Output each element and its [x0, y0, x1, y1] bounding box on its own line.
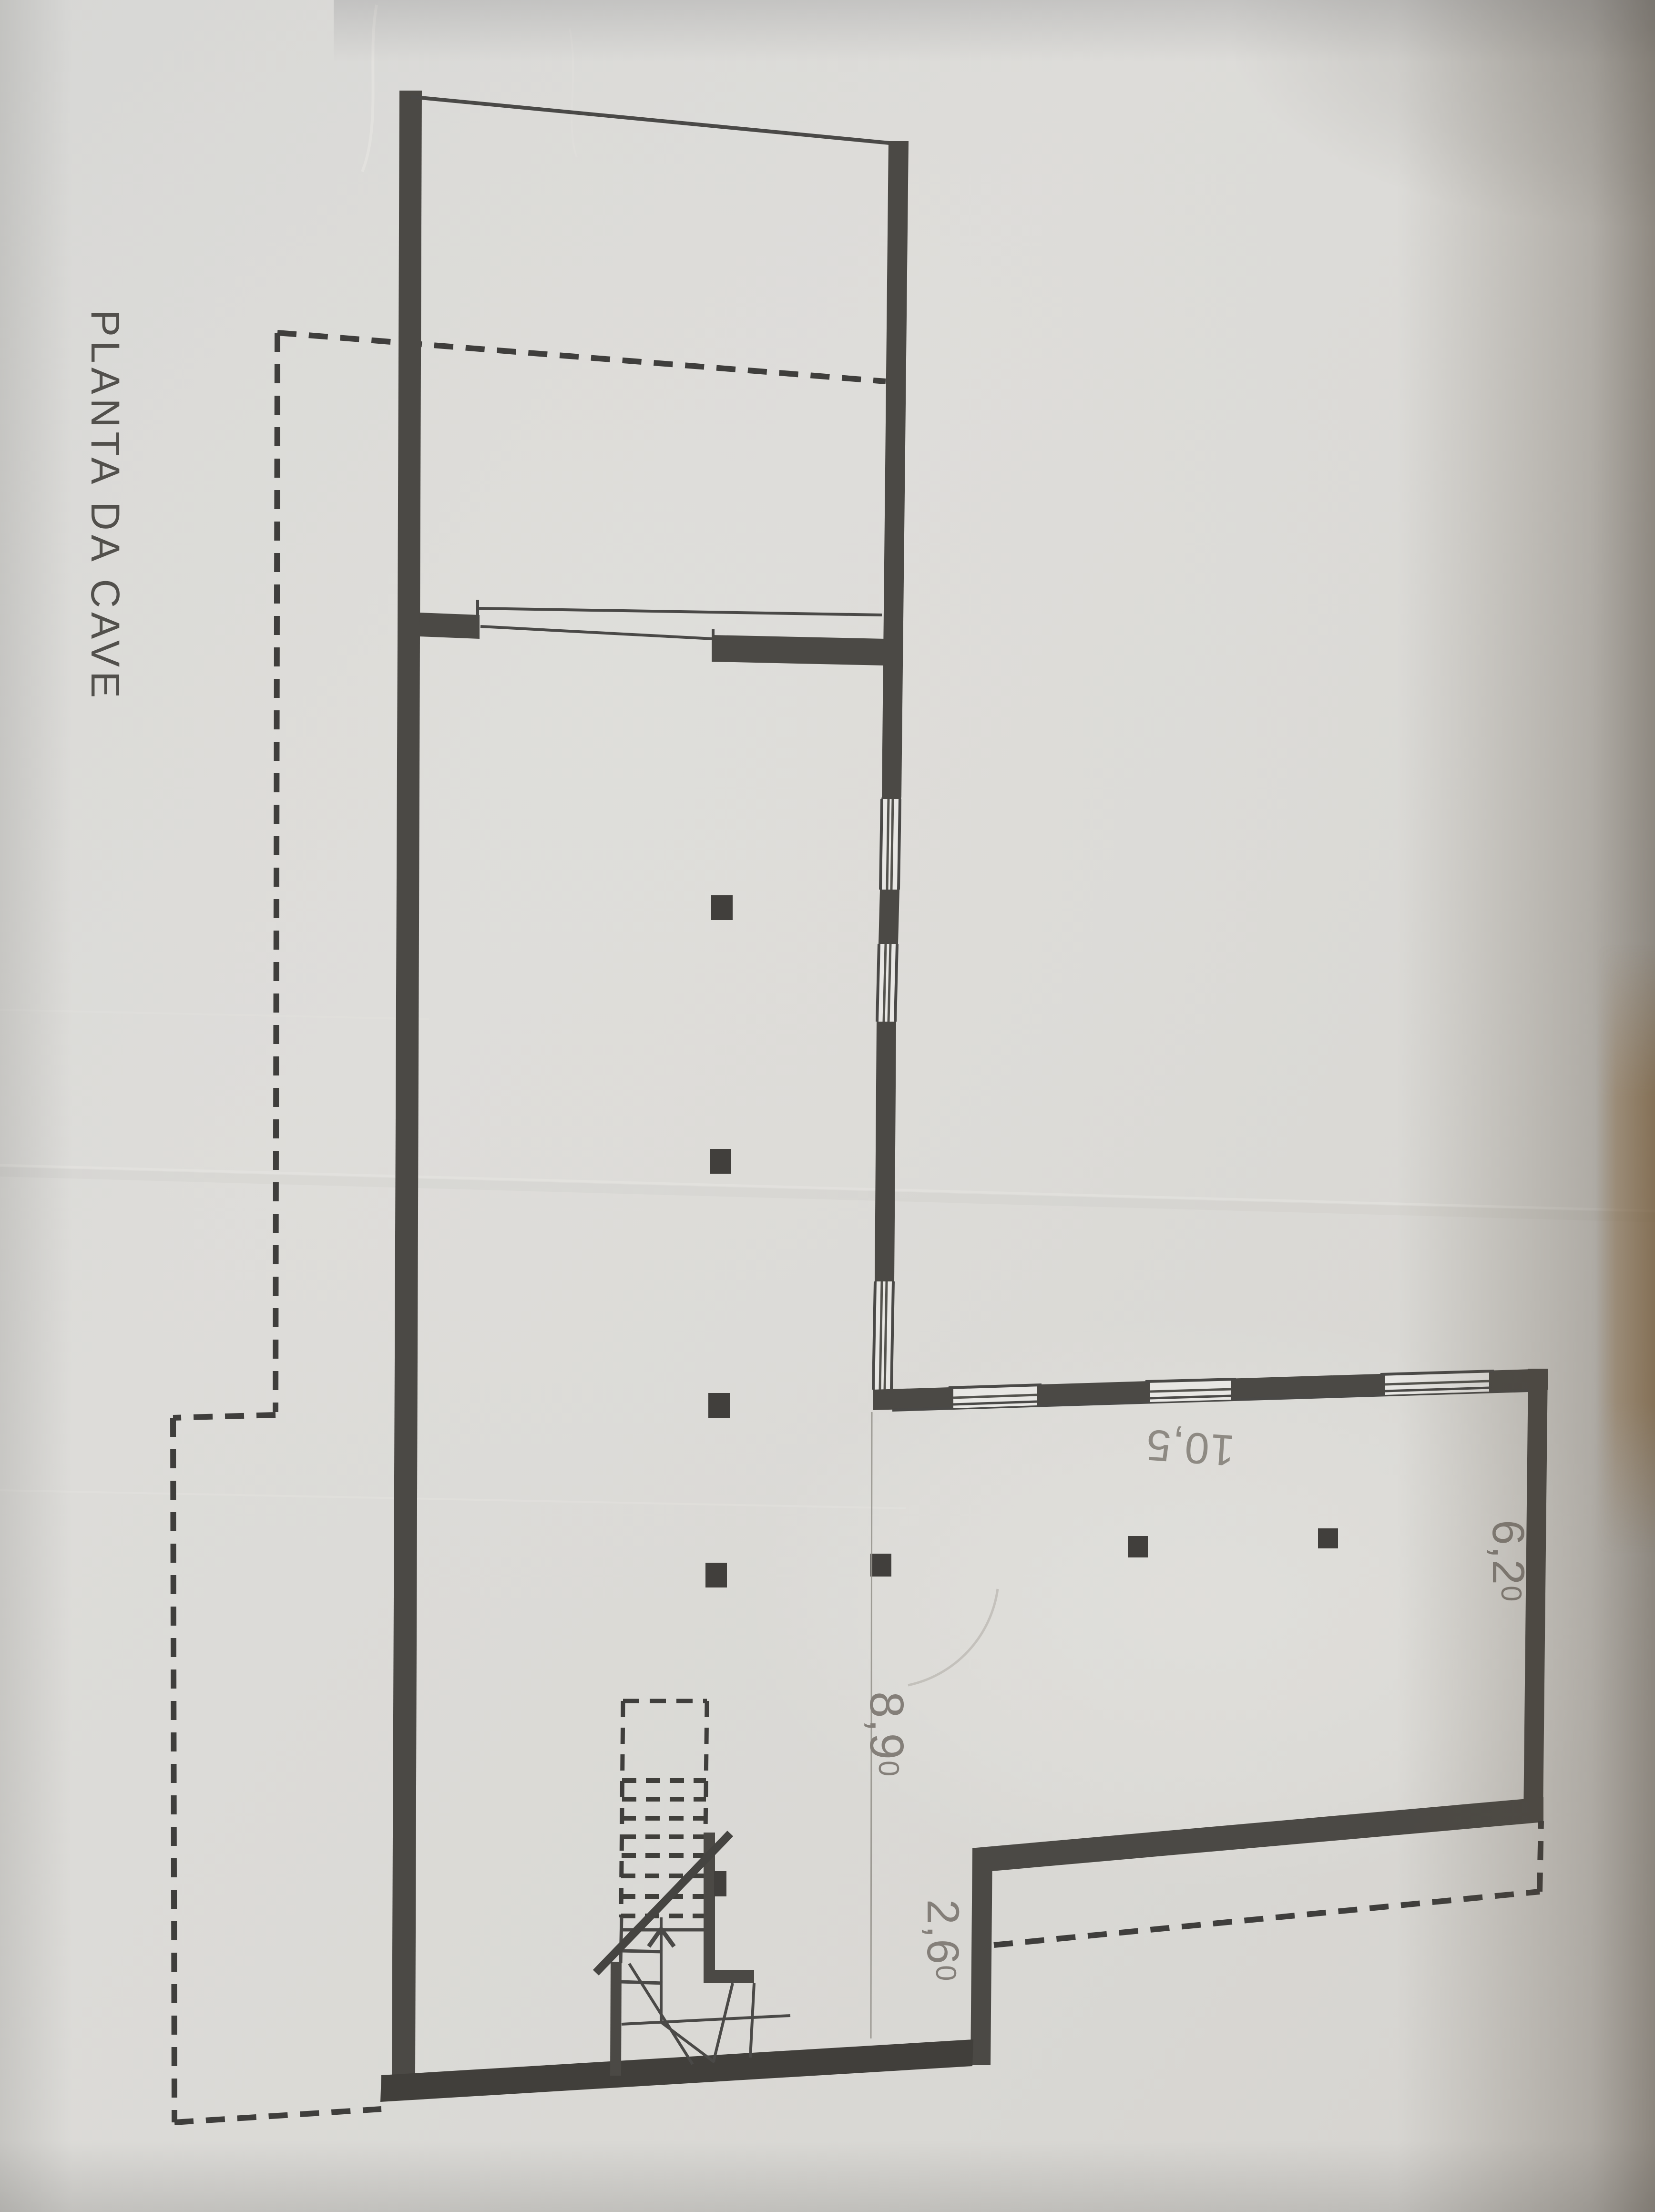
svg-text:PLANTA DA CAVE: PLANTA DA CAVE — [83, 310, 128, 700]
svg-text:10,5: 10,5 — [1144, 1420, 1236, 1475]
